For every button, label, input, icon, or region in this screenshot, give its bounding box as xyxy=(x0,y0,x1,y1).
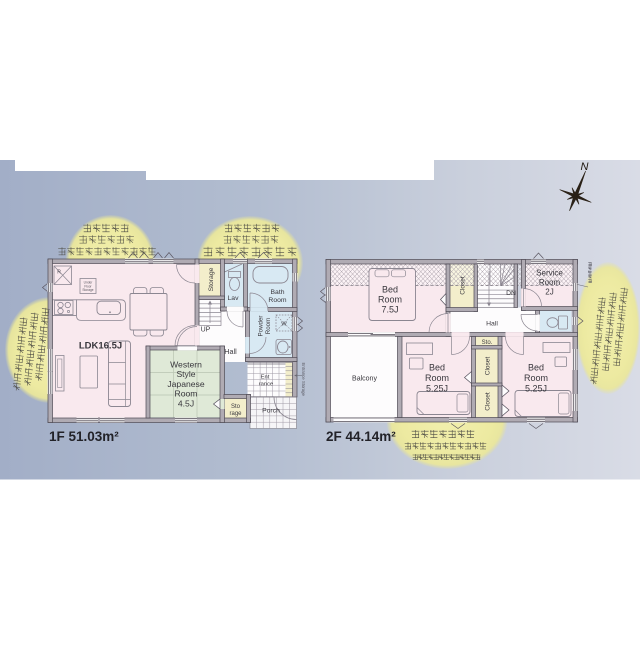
svg-text:Sto: Sto xyxy=(231,404,241,410)
svg-text:Hall: Hall xyxy=(224,347,237,356)
svg-text:N: N xyxy=(581,161,589,173)
svg-text:Entrance Storage: Entrance Storage xyxy=(301,363,306,397)
svg-text:W: W xyxy=(281,322,287,328)
svg-text:Japanese: Japanese xyxy=(167,379,204,389)
svg-text:Western: Western xyxy=(170,360,202,370)
svg-text:Closet: Closet xyxy=(485,357,492,376)
svg-text:Hall: Hall xyxy=(486,321,498,328)
svg-text:Bed: Bed xyxy=(382,285,398,295)
svg-text:Sto.: Sto. xyxy=(482,340,493,346)
svg-text:Room: Room xyxy=(175,389,198,399)
svg-text:Room: Room xyxy=(268,297,286,304)
svg-text:Service: Service xyxy=(536,269,563,278)
svg-text:Lav: Lav xyxy=(228,295,240,302)
svg-text:Room: Room xyxy=(378,295,402,305)
svg-text:Closet: Closet xyxy=(460,276,467,295)
svg-text:Bed: Bed xyxy=(429,363,445,373)
svg-text:UP: UP xyxy=(201,327,211,334)
svg-text:2J: 2J xyxy=(545,288,553,297)
svg-text:1F 51.03m²: 1F 51.03m² xyxy=(49,429,119,444)
svg-text:R: R xyxy=(57,270,61,276)
svg-text:5.25J: 5.25J xyxy=(426,384,448,394)
svg-text:Room: Room xyxy=(524,373,548,383)
svg-text:Bed: Bed xyxy=(528,363,544,373)
svg-text:LDK16.5J: LDK16.5J xyxy=(79,341,122,352)
svg-text:4.5J: 4.5J xyxy=(178,398,194,408)
svg-text:Bath: Bath xyxy=(271,289,285,296)
svg-text:2F 44.14m²: 2F 44.14m² xyxy=(326,429,396,444)
svg-text:Closet: Closet xyxy=(485,392,492,411)
svg-text:Balcony: Balcony xyxy=(352,376,377,383)
svg-text:rance: rance xyxy=(259,382,274,388)
svg-text:Powder: Powder xyxy=(258,316,265,337)
svg-text:Storage: Storage xyxy=(82,288,93,292)
svg-text:7.5J: 7.5J xyxy=(381,305,398,315)
svg-text:5.25J: 5.25J xyxy=(525,384,547,394)
svg-text:rage: rage xyxy=(229,411,242,417)
svg-text:Room: Room xyxy=(539,278,561,287)
svg-text:Porch: Porch xyxy=(262,408,280,415)
svg-text:Room: Room xyxy=(425,373,449,383)
svg-text:Style: Style xyxy=(176,369,195,379)
svg-text:Ent: Ent xyxy=(261,375,270,381)
svg-text:DN: DN xyxy=(506,290,516,297)
svg-text:Room: Room xyxy=(265,318,272,335)
svg-text:Storage: Storage xyxy=(208,267,215,291)
